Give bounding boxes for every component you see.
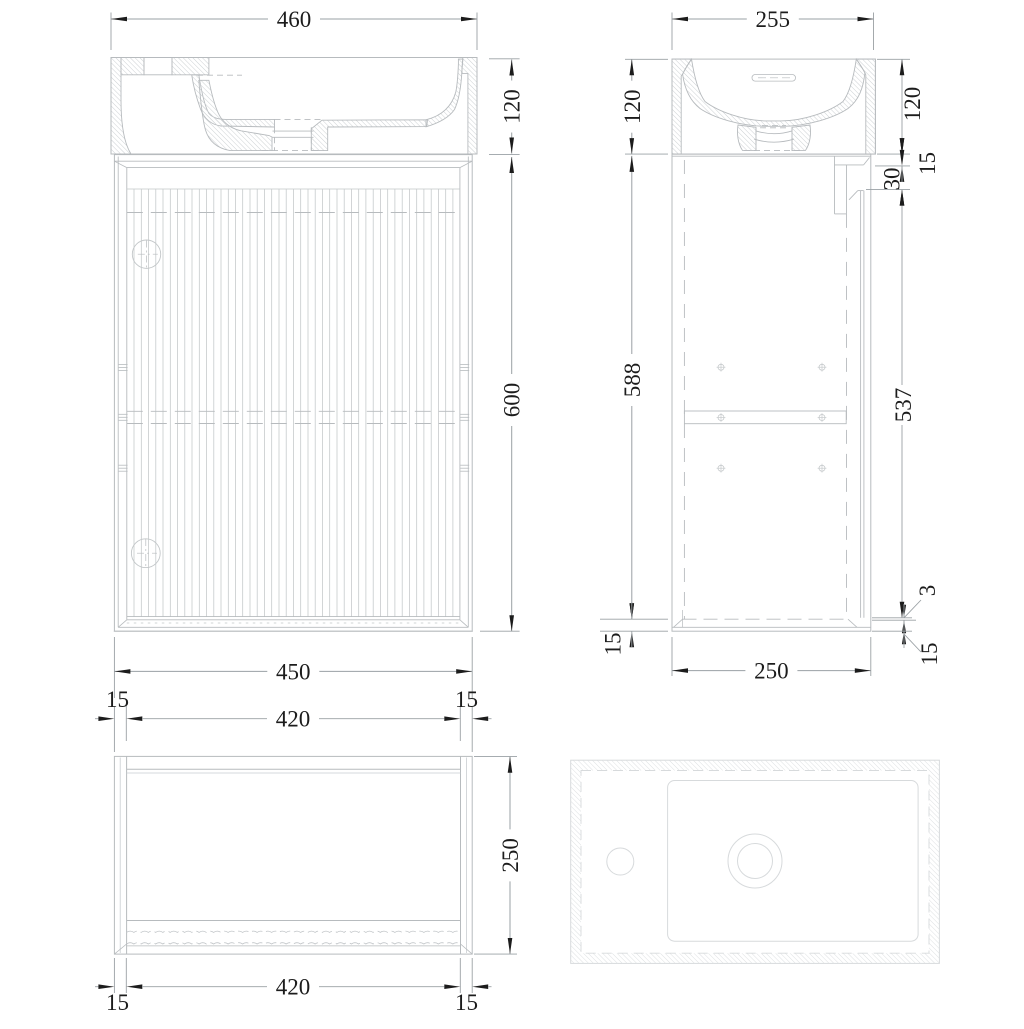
svg-text:120: 120	[620, 89, 645, 124]
svg-text:15: 15	[455, 990, 478, 1015]
svg-text:588: 588	[620, 363, 645, 398]
svg-text:120: 120	[900, 87, 925, 122]
svg-text:537: 537	[891, 388, 916, 423]
svg-text:250: 250	[498, 838, 523, 873]
svg-text:3: 3	[915, 585, 940, 597]
svg-text:250: 250	[754, 659, 789, 684]
svg-text:255: 255	[756, 7, 791, 32]
svg-text:15: 15	[106, 687, 129, 712]
svg-text:450: 450	[276, 659, 311, 684]
svg-text:15: 15	[106, 990, 129, 1015]
svg-text:15: 15	[601, 633, 626, 656]
svg-text:15: 15	[915, 152, 940, 175]
svg-text:120: 120	[500, 89, 525, 124]
svg-text:30: 30	[880, 168, 905, 191]
svg-text:600: 600	[500, 383, 525, 418]
svg-text:15: 15	[455, 687, 478, 712]
svg-text:460: 460	[277, 7, 312, 32]
svg-text:420: 420	[276, 707, 311, 732]
svg-text:420: 420	[276, 975, 311, 1000]
svg-text:15: 15	[917, 643, 942, 666]
